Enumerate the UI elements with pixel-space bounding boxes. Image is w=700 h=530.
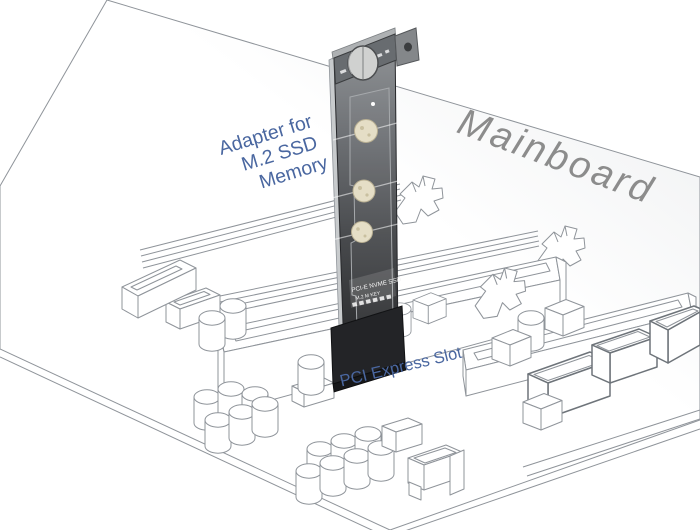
capacitor-front-slot bbox=[298, 355, 324, 395]
illustration-canvas: PCI-E NVME SSD M.2 M KEY Adapter for M.2… bbox=[0, 0, 700, 530]
capacitor bbox=[199, 311, 225, 351]
standoff-screw bbox=[352, 222, 373, 243]
small-socket bbox=[450, 450, 464, 495]
bracket-screw-hole bbox=[404, 43, 412, 52]
card-led-dot bbox=[371, 102, 375, 106]
standoff-screw bbox=[355, 120, 378, 143]
mainboard-illustration: PCI-E NVME SSD M.2 M KEY Adapter for M.2… bbox=[0, 0, 700, 530]
standoff-screw bbox=[353, 180, 375, 202]
